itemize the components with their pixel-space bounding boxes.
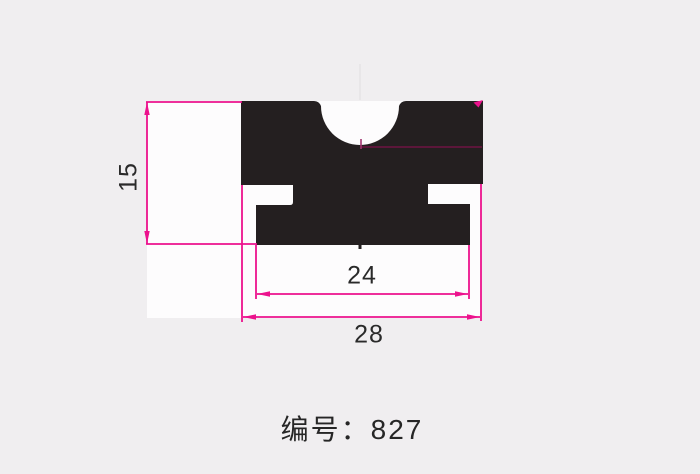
- drawing-canvas: 15 24 28 编号：827: [0, 0, 700, 474]
- outer-width-dimension-label: 28: [354, 323, 384, 348]
- inner-width-dimension-label: 24: [347, 264, 377, 289]
- height-dimension-label: 15: [117, 162, 142, 192]
- profile-drawing: [0, 0, 700, 474]
- part-number-label: 编号：827: [281, 416, 424, 444]
